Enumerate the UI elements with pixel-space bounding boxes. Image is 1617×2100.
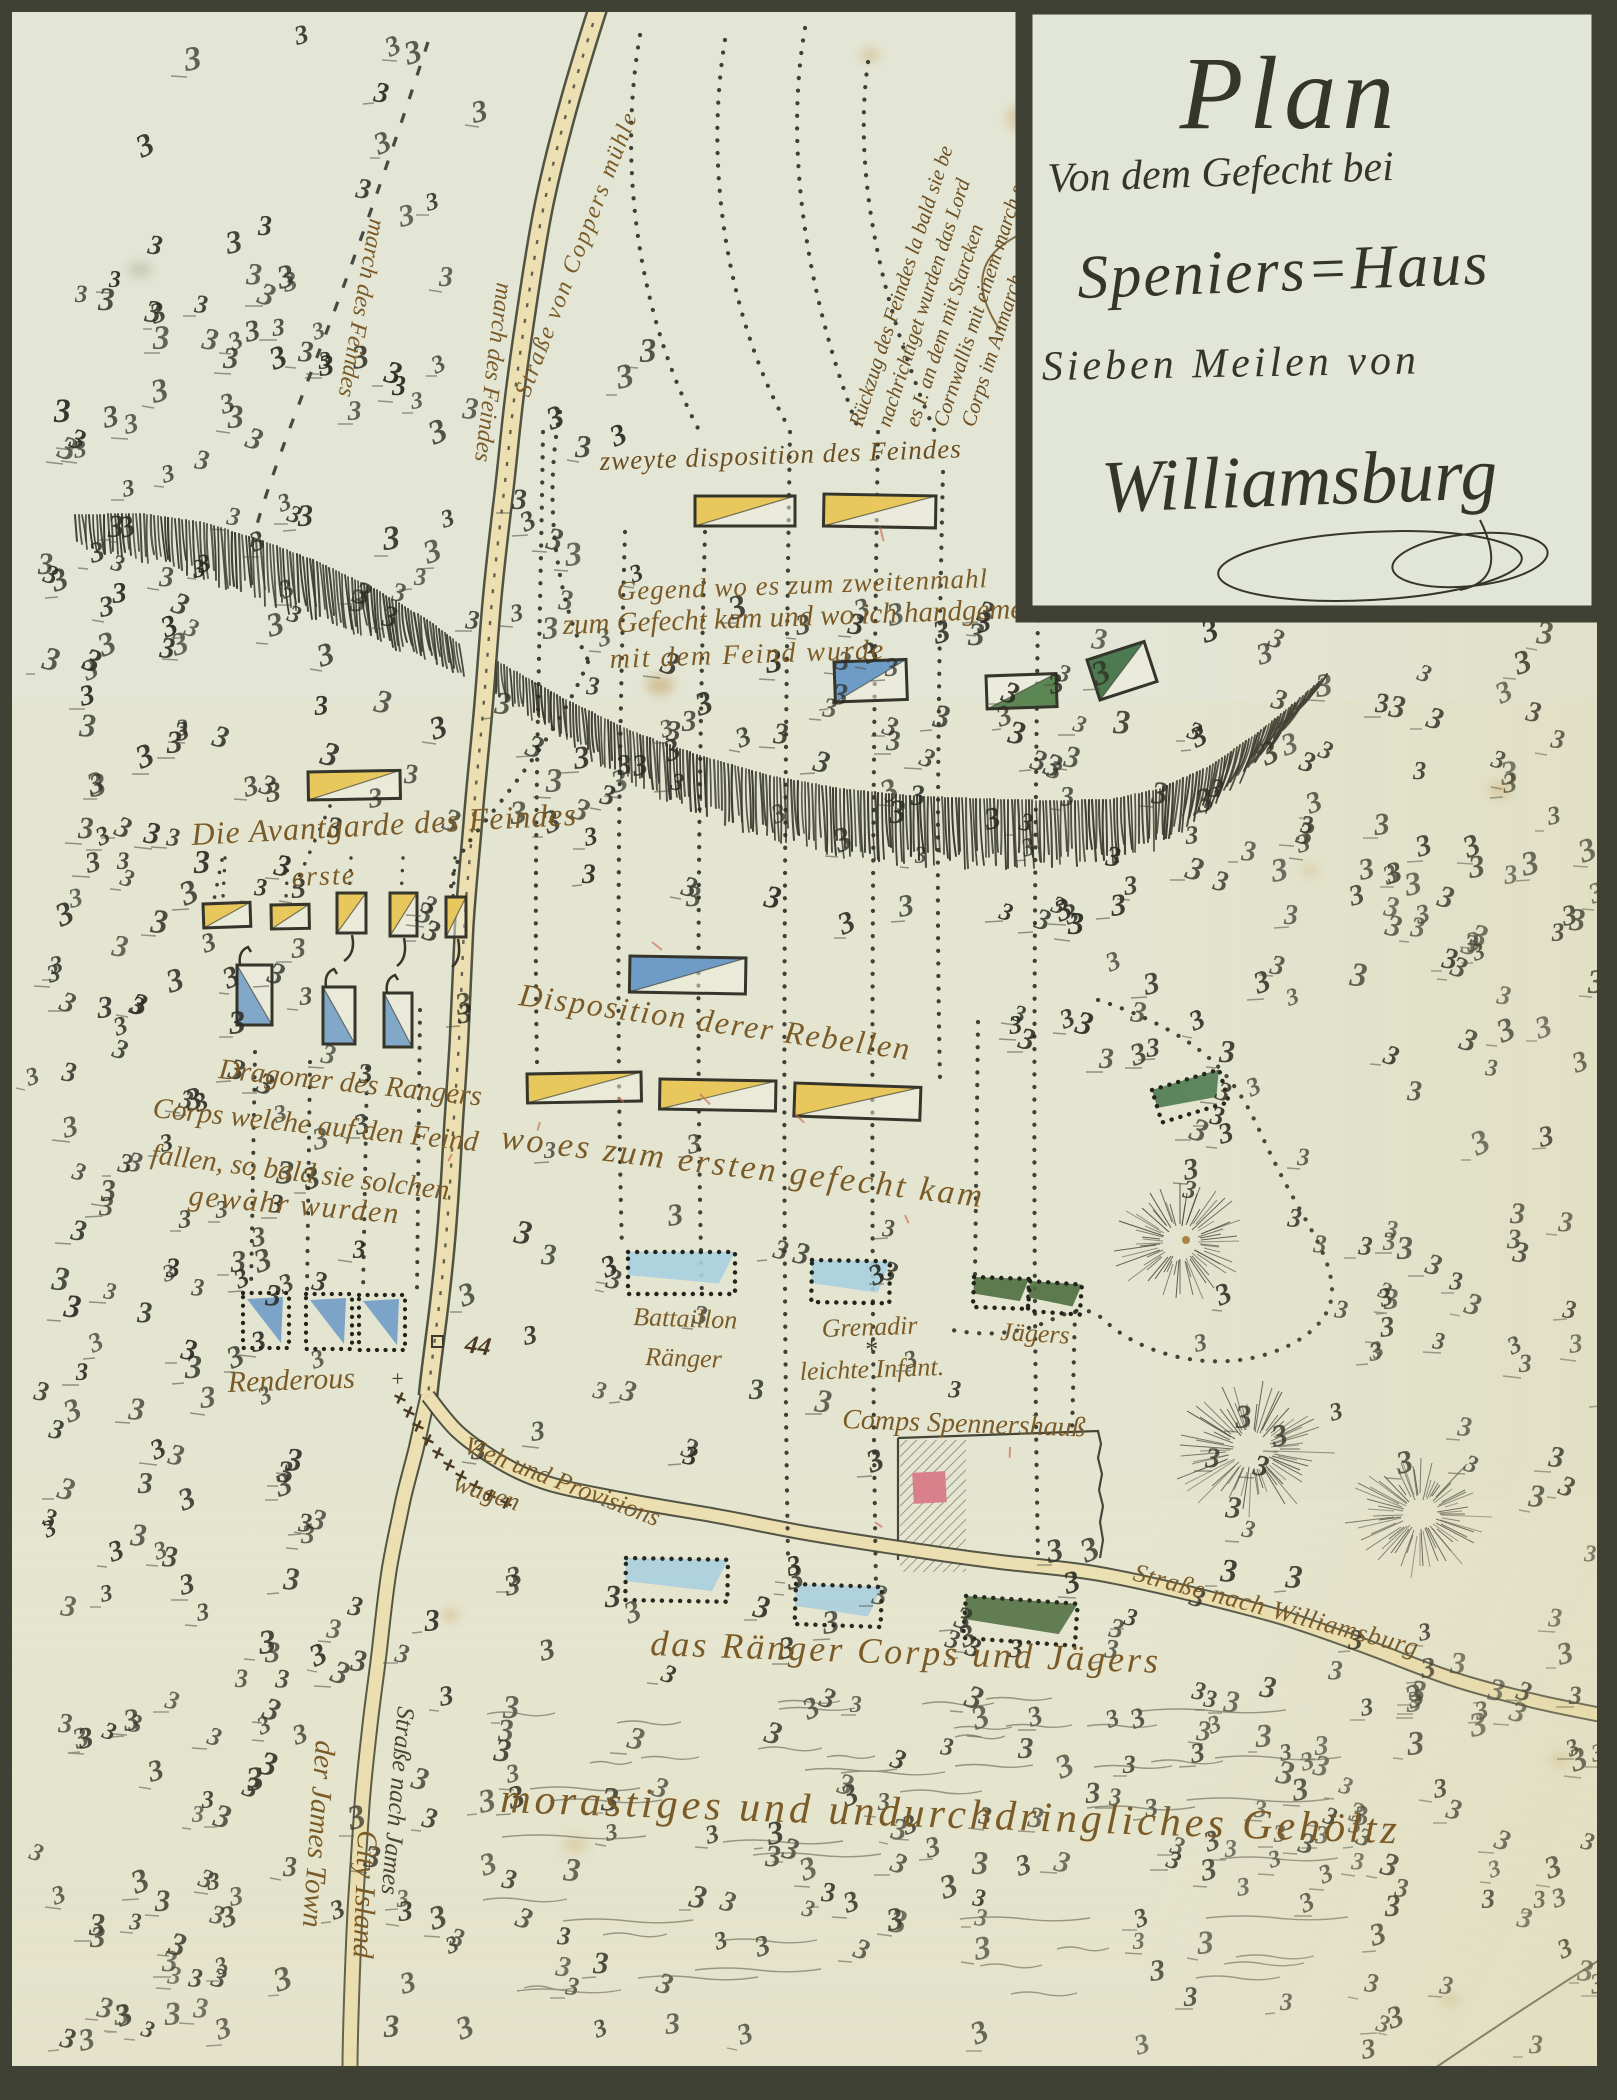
svg-text:3: 3 (158, 561, 175, 594)
svg-text:3: 3 (1067, 905, 1084, 941)
svg-text:3: 3 (127, 1390, 146, 1427)
svg-text:3: 3 (245, 256, 263, 292)
svg-text:3: 3 (351, 1234, 366, 1264)
svg-text:erste: erste (291, 860, 356, 893)
svg-text:44: 44 (462, 1329, 493, 1361)
svg-text:3: 3 (289, 932, 307, 965)
svg-text:3: 3 (680, 704, 698, 738)
svg-text:3: 3 (106, 507, 124, 544)
svg-text:3: 3 (74, 281, 88, 308)
svg-text:Battaillon: Battaillon (633, 1302, 738, 1335)
svg-text:3: 3 (184, 1349, 202, 1386)
svg-text:Renderous: Renderous (226, 1362, 355, 1399)
svg-text:Ränger: Ränger (644, 1342, 723, 1374)
svg-text:Jägers: Jägers (1000, 1317, 1071, 1350)
svg-text:3: 3 (909, 779, 926, 812)
svg-text:3: 3 (637, 332, 657, 370)
svg-text:3: 3 (413, 564, 427, 591)
svg-text:3: 3 (1112, 704, 1131, 742)
svg-text:3: 3 (189, 1274, 205, 1302)
svg-text:City Island: City Island (347, 1830, 383, 1960)
svg-text:3: 3 (316, 347, 332, 375)
svg-text:+: + (390, 1366, 405, 1391)
svg-text:3: 3 (257, 211, 272, 242)
svg-text:3: 3 (884, 652, 899, 682)
svg-text:Plan: Plan (1179, 36, 1400, 151)
svg-text:*: * (864, 1335, 877, 1364)
svg-text:3: 3 (1098, 1042, 1114, 1075)
svg-text:Speniers=Haus: Speniers=Haus (1076, 230, 1490, 312)
svg-text:3: 3 (1058, 781, 1076, 813)
svg-text:3: 3 (438, 262, 453, 293)
svg-text:3: 3 (947, 1376, 962, 1404)
svg-text:3: 3 (78, 708, 97, 745)
svg-text:3: 3 (312, 690, 330, 722)
svg-text:3: 3 (297, 335, 315, 369)
svg-text:Williamsburg: Williamsburg (1100, 433, 1499, 529)
svg-text:3: 3 (225, 399, 245, 436)
svg-text:3: 3 (665, 715, 682, 748)
svg-text:3: 3 (574, 428, 592, 464)
svg-text:3: 3 (403, 759, 419, 790)
svg-text:3: 3 (913, 842, 928, 869)
svg-text:3: 3 (748, 1373, 764, 1406)
svg-text:3: 3 (164, 723, 183, 760)
svg-text:3: 3 (772, 717, 790, 751)
svg-text:3: 3 (346, 395, 363, 427)
svg-text:3: 3 (540, 609, 559, 646)
svg-text:3: 3 (540, 1238, 558, 1272)
svg-text:3: 3 (52, 393, 71, 430)
svg-text:3: 3 (99, 1172, 117, 1208)
svg-text:3: 3 (581, 859, 597, 890)
svg-text:3: 3 (74, 1359, 88, 1386)
svg-text:Sieben Meilen von: Sieben Meilen von (1041, 337, 1420, 390)
svg-text:3: 3 (585, 671, 601, 701)
svg-text:3: 3 (297, 981, 313, 1011)
svg-text:3: 3 (136, 1296, 153, 1330)
svg-text:3: 3 (543, 762, 563, 800)
svg-text:3: 3 (229, 1243, 247, 1279)
svg-text:3: 3 (108, 267, 121, 293)
svg-text:3: 3 (887, 794, 906, 831)
